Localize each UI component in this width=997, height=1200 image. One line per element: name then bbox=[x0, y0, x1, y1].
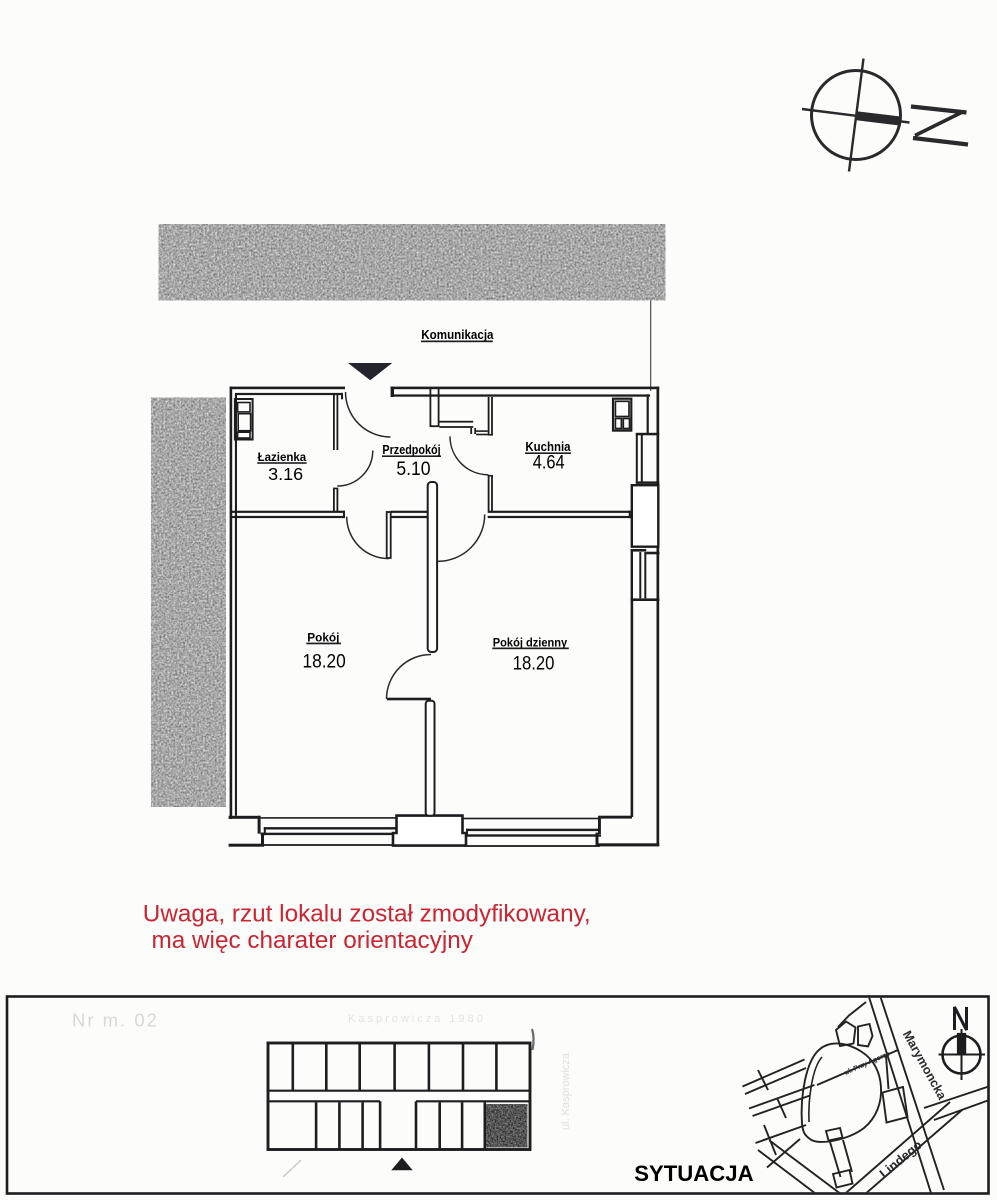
svg-text:Pokój dzienny: Pokój dzienny bbox=[493, 635, 567, 649]
svg-text:5.10: 5.10 bbox=[396, 459, 430, 480]
svg-text:18.20: 18.20 bbox=[513, 653, 555, 675]
svg-text:Łazienka: Łazienka bbox=[258, 450, 307, 464]
svg-text:Komunikacja: Komunikacja bbox=[421, 327, 494, 342]
svg-text:Kasprowicza 1980: Kasprowicza 1980 bbox=[348, 1013, 486, 1025]
svg-text:4.64: 4.64 bbox=[533, 453, 565, 474]
svg-text:Nr m. 02: Nr m. 02 bbox=[72, 1010, 159, 1031]
svg-text:ul. Kasprowicza: ul. Kasprowicza bbox=[560, 1052, 572, 1130]
svg-text:18.20: 18.20 bbox=[303, 650, 346, 672]
svg-text:Przedpokój: Przedpokój bbox=[382, 443, 440, 457]
svg-text:Pokój: Pokój bbox=[307, 631, 339, 645]
svg-text:3.16: 3.16 bbox=[268, 464, 303, 484]
svg-text:ma więc charater orientacyjny: ma więc charater orientacyjny bbox=[152, 927, 474, 954]
svg-text:Uwaga, rzut lokalu został zmod: Uwaga, rzut lokalu został zmodyfikowany, bbox=[143, 900, 591, 927]
svg-text:SYTUACJA: SYTUACJA bbox=[634, 1161, 753, 1186]
